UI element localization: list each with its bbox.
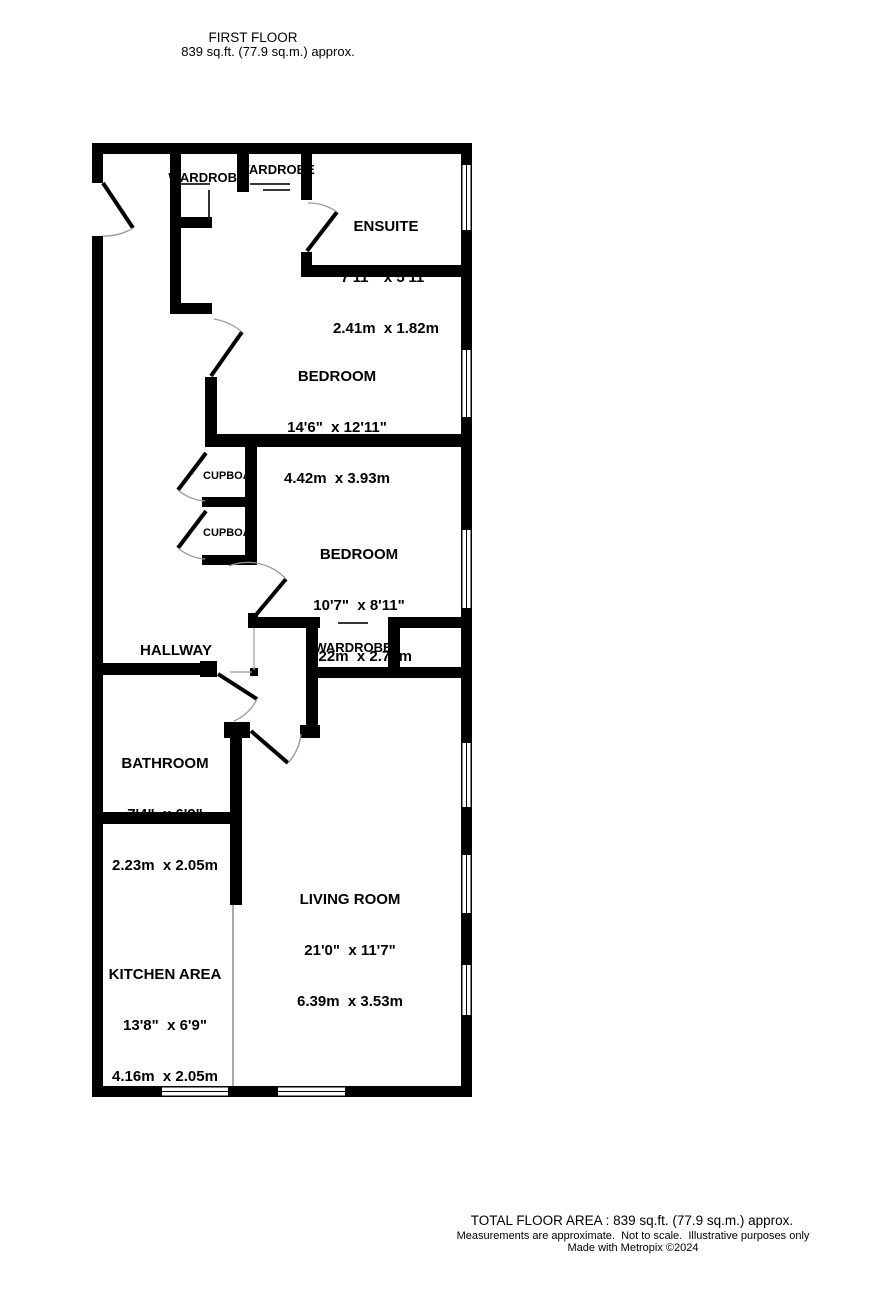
room-label-bedroom2: BEDROOM 10'7" x 8'11" 3.22m x 2.72m (306, 512, 412, 699)
disclaimer-text: Measurements are approximate. Not to sca… (457, 1230, 810, 1242)
total-floor-area: TOTAL FLOOR AREA : 839 sq.ft. (77.9 sq.m… (471, 1213, 793, 1228)
room-label-hallway: HALLWAY (140, 608, 212, 693)
floorplan-page: FIRST FLOOR 839 sq.ft. (77.9 sq.m.) appr… (0, 0, 886, 1291)
label-wardrobe-3: WARDROBE (314, 641, 391, 655)
room-label-kitchen-area: KITCHEN AREA 13'8" x 6'9" 4.16m x 2.05m (109, 932, 222, 1119)
room-label-living-room: LIVING ROOM 21'0" x 11'7" 6.39m x 3.53m (297, 857, 403, 1044)
floor-title: FIRST FLOOR (208, 31, 297, 45)
label-cupboard-1: CUPBOARD (203, 470, 247, 482)
open-door-trace-lines (230, 628, 254, 672)
label-cupboard-2: CUPBOARD (203, 527, 247, 539)
label-wardrobe-1: WARDROBE (168, 171, 245, 185)
credit-text: Made with Metropix ©2024 (567, 1242, 698, 1254)
kitchen-living-divider-line (232, 905, 234, 1086)
floor-area-subtitle: 839 sq.ft. (77.9 sq.m.) approx. (181, 45, 354, 59)
room-label-bathroom: BATHROOM 7'4" x 6'9" 2.23m x 2.05m (112, 721, 218, 908)
label-wardrobe-2: WARDROBE (237, 163, 314, 177)
room-label-bedroom1: BEDROOM 14'6" x 12'11" 4.42m x 3.93m (284, 334, 390, 521)
